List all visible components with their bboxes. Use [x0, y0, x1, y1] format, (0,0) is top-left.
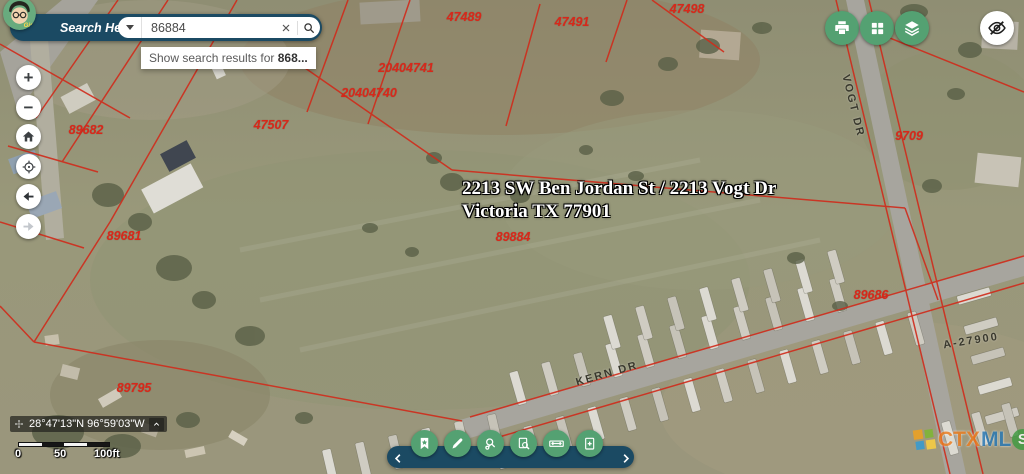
crosshair-icon [13, 418, 25, 430]
select-tools-icon [483, 436, 499, 452]
measure-icon [548, 435, 565, 452]
search-input[interactable]: 86884 [118, 17, 320, 38]
close-icon [280, 22, 292, 34]
select-tools-button[interactable] [477, 430, 504, 457]
plus-icon: + [24, 69, 34, 86]
draw-tool-button[interactable] [444, 430, 471, 457]
forward-arrow-icon [21, 219, 36, 234]
search-records-button[interactable] [510, 430, 537, 457]
coordinate-value: 28°47'13"N 96°59'03"W [29, 418, 145, 430]
toolbar-next-button[interactable] [616, 449, 634, 467]
my-location-icon [21, 159, 37, 175]
layers-button[interactable] [895, 11, 929, 45]
bookmarks-tool-button[interactable] [411, 430, 438, 457]
suggestion-highlight: 868... [278, 51, 308, 65]
chevron-right-icon [619, 452, 632, 465]
search-suggestion-item[interactable]: Show search results for 868... [141, 47, 316, 69]
apps-grid-button[interactable] [860, 11, 894, 45]
search-type-dropdown[interactable] [118, 17, 142, 38]
my-location-button[interactable] [16, 154, 41, 179]
search-document-icon [516, 436, 532, 452]
aerial-imagery [0, 0, 1024, 474]
zoom-in-button[interactable]: + [16, 65, 41, 90]
scale-bar: 0 50 100ft [18, 442, 110, 460]
bookmark-star-icon [417, 436, 432, 451]
search-icon [302, 21, 316, 35]
visibility-toggle-button[interactable] [980, 11, 1014, 45]
coordinate-display: 28°47'13"N 96°59'03"W [10, 416, 167, 432]
print-button[interactable] [825, 11, 859, 45]
zoom-out-button[interactable]: − [16, 95, 41, 120]
next-extent-button[interactable] [16, 214, 41, 239]
visibility-off-icon [987, 18, 1007, 38]
measure-tool-button[interactable] [543, 430, 570, 457]
map-viewport[interactable]: 2213 SW Ben Jordan St / 2213 Vogt Dr Vic… [0, 0, 1024, 474]
scale-tick-50: 50 [54, 448, 66, 460]
scale-tick-0: 0 [15, 448, 21, 460]
home-extent-button[interactable] [16, 124, 41, 149]
chevron-left-icon [392, 452, 405, 465]
back-arrow-icon [21, 189, 36, 204]
search-submit-button[interactable] [298, 17, 320, 38]
print-icon [833, 19, 851, 37]
toolbar-prev-button[interactable] [389, 449, 407, 467]
scale-bar-segments [18, 442, 110, 447]
chevron-up-icon [152, 420, 161, 429]
suggestion-text: Show search results for [149, 51, 278, 65]
minus-icon: − [24, 99, 34, 116]
previous-extent-button[interactable] [16, 184, 41, 209]
coordinates-collapse-button[interactable] [149, 418, 164, 431]
scale-tick-100ft: 100ft [94, 448, 120, 460]
layers-icon [903, 19, 921, 37]
draw-pencil-icon [450, 436, 465, 451]
home-icon [21, 129, 36, 144]
apps-grid-icon [869, 20, 886, 37]
clear-search-button[interactable] [275, 17, 297, 38]
search-input-value[interactable]: 86884 [142, 21, 275, 35]
chevron-down-icon [126, 25, 134, 30]
add-page-icon [582, 436, 598, 452]
search-bar: Search Here: 86884 [10, 14, 322, 41]
add-data-button[interactable] [576, 430, 603, 457]
